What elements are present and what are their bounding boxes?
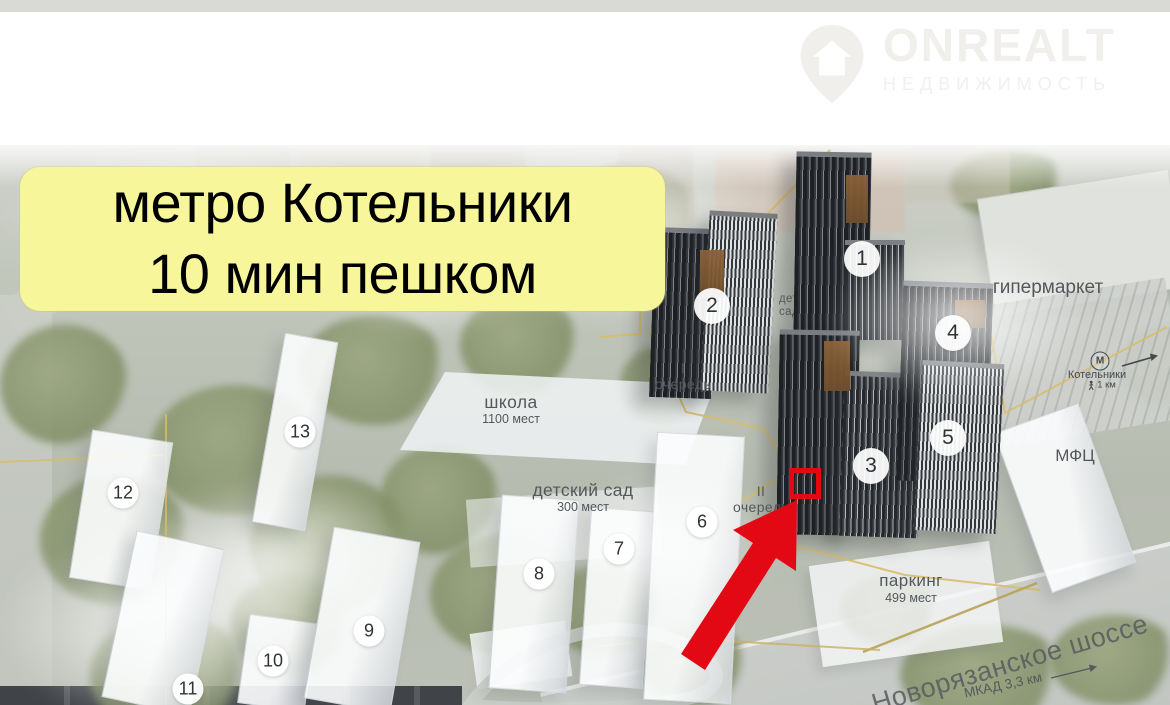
building-badge-5: 5 [930, 420, 966, 456]
building-badge-10: 10 [258, 646, 289, 677]
onrealt-logo-text-block: ONREALT НЕДВИЖИМОСТЬ [883, 22, 1116, 95]
top-bar [0, 0, 1170, 12]
mfc-label: МФЦ [1055, 446, 1094, 466]
walking-icon [1088, 380, 1094, 390]
metro-callout-line1: метро Котельники [113, 168, 573, 239]
building-badge-9: 9 [354, 616, 385, 647]
metro-icon: М [1091, 352, 1110, 371]
building-badge-13: 13 [285, 417, 316, 448]
metro-callout-line2: 10 мин пешком [148, 239, 537, 310]
onrealt-logo-subtext: НЕДВИЖИМОСТЬ [883, 74, 1116, 95]
header: ONREALT НЕДВИЖИМОСТЬ [0, 12, 1170, 145]
onrealt-logo: ONREALT НЕДВИЖИМОСТЬ [795, 22, 1116, 106]
mfc-building [994, 403, 1137, 594]
building-badge-7: 7 [604, 534, 635, 565]
onrealt-logo-text: ONREALT [883, 22, 1116, 68]
building-badge-12: 12 [108, 478, 139, 509]
building-badge-1: 1 [844, 241, 880, 277]
school-label: школа 1100 мест [482, 392, 540, 427]
hypermarket-label: гипермаркет [993, 277, 1103, 299]
building-badge-11: 11 [173, 674, 204, 705]
building-badge-3: 3 [853, 448, 889, 484]
phase-2-label: II очередь [733, 483, 789, 515]
onrealt-pin-icon [795, 22, 869, 106]
tree-cluster [0, 325, 130, 445]
building-badge-6: 6 [687, 507, 718, 538]
building-badge-4: 4 [935, 315, 971, 351]
metro-callout: метро Котельники 10 мин пешком [20, 167, 665, 311]
copper-facade-panel [846, 175, 868, 223]
location-highlight-square [789, 468, 821, 499]
listing-image: ONREALT НЕДВИЖИМОСТЬ [0, 0, 1170, 705]
parking-label: паркинг 499 мест [879, 571, 942, 605]
building-badge-2: 2 [694, 288, 730, 324]
kindergarten-300-label: детский сад 300 мест [532, 480, 633, 515]
building-badge-8: 8 [524, 559, 555, 590]
phase-1-label: I очередь [655, 360, 711, 392]
metro-distance-label: 1 км [1088, 380, 1116, 391]
